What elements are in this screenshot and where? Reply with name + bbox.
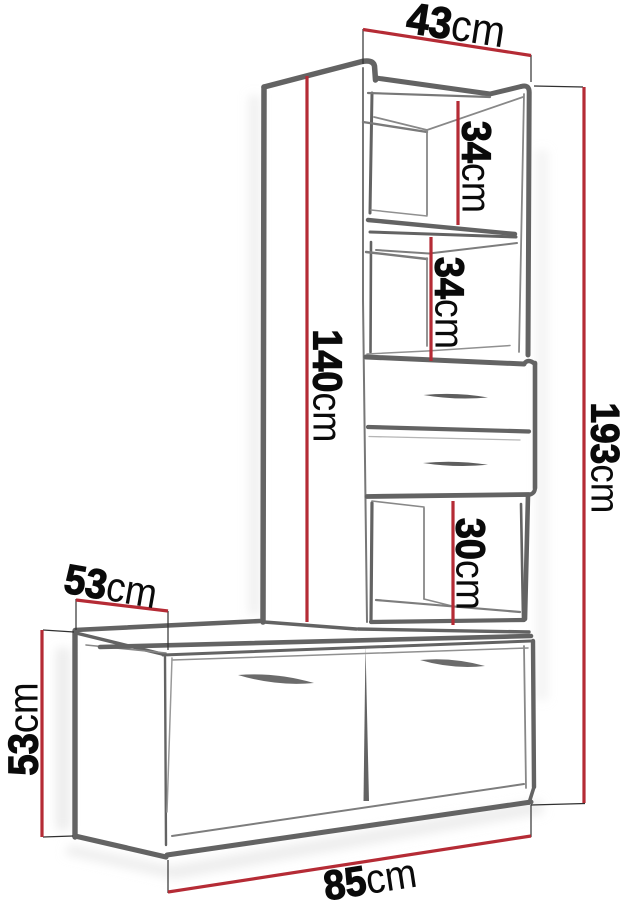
svg-text:34cm: 34cm [426,257,472,349]
svg-text:193cm: 193cm [582,403,627,514]
svg-text:53cm: 53cm [1,682,47,775]
svg-text:30cm: 30cm [447,518,493,610]
svg-text:140cm: 140cm [304,329,350,442]
svg-text:34cm: 34cm [453,121,499,213]
